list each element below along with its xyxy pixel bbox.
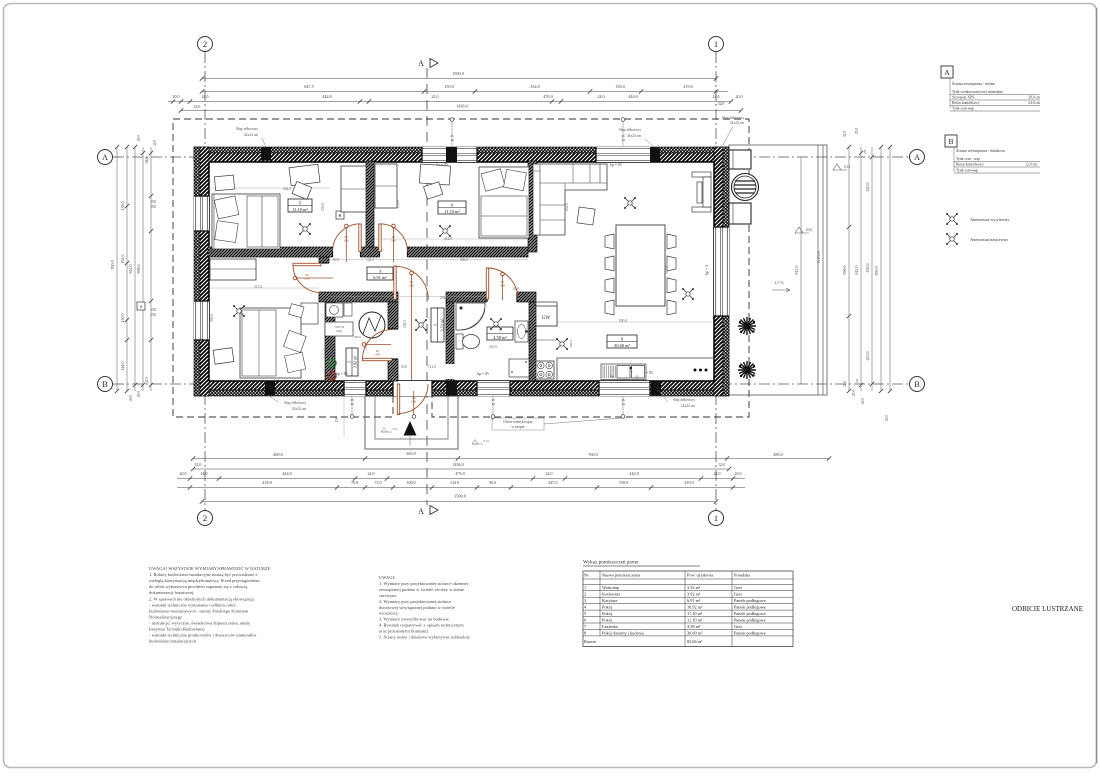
- svg-text:225.0: 225.0: [865, 352, 870, 361]
- svg-text:dokumentacji branżowej.: dokumentacji branżowej.: [149, 590, 194, 595]
- svg-text:- warunki techniczne producent: - warunki techniczne producentów i dosta…: [149, 633, 257, 638]
- svg-text:rozległą kontynuacją międzybra: rozległą kontynuacją międzybranżową. Prz…: [149, 578, 260, 583]
- svg-text:10.92 m²: 10.92 m²: [687, 605, 703, 610]
- svg-text:262.0: 262.0: [565, 203, 569, 212]
- svg-text:20.0: 20.0: [129, 395, 133, 401]
- svg-text:hp = 4: hp = 4: [705, 265, 709, 275]
- svg-text:90.0: 90.0: [489, 480, 496, 485]
- svg-text:Wiatrołap: Wiatrołap: [602, 585, 619, 590]
- svg-text:20.0: 20.0: [173, 94, 180, 99]
- svg-text:1950: 1950: [336, 329, 343, 333]
- svg-text:14: 14: [621, 402, 625, 406]
- svg-text:Pokój: Pokój: [602, 605, 612, 610]
- svg-text:Słup żelbetowy: Słup żelbetowy: [673, 398, 695, 402]
- svg-text:UWAGI:: UWAGI:: [379, 575, 395, 580]
- svg-text:Nazwa pomieszczenia: Nazwa pomieszczenia: [602, 573, 640, 578]
- svg-text:24x24 cm: 24x24 cm: [627, 134, 641, 138]
- svg-text:Beton komórkowy: Beton komórkowy: [952, 101, 980, 105]
- svg-text:158.0: 158.0: [120, 202, 125, 211]
- svg-text:94.0: 94.0: [145, 157, 149, 164]
- svg-text:2: 2: [203, 513, 207, 523]
- svg-text:0.32: 0.32: [483, 439, 489, 443]
- svg-text:5: 5: [584, 611, 586, 616]
- svg-text:B: B: [338, 213, 341, 218]
- svg-text:200: 200: [304, 277, 309, 281]
- svg-text:82.66 m²: 82.66 m²: [687, 639, 703, 644]
- svg-text:2x15x30: 2x15x30: [817, 251, 821, 264]
- svg-text:24x24 cm: 24x24 cm: [681, 404, 695, 408]
- svg-text:24x24 cm: 24x24 cm: [292, 407, 306, 411]
- svg-text:Ściana wewnętrzna - działowa: Ściana wewnętrzna - działowa: [956, 148, 1005, 153]
- svg-text:Tynk cienkowarstwowy mineralny: Tynk cienkowarstwowy mineralny: [952, 90, 1003, 94]
- svg-text:A: A: [944, 68, 950, 77]
- svg-text:budowlano-montażowych - normy: budowlano-montażowych - normy Polskiego …: [149, 608, 249, 613]
- svg-text:Panele podłogowe: Panele podłogowe: [734, 611, 766, 616]
- svg-text:Styropian XPS: Styropian XPS: [952, 96, 974, 100]
- svg-text:32.0: 32.0: [195, 463, 202, 467]
- svg-text:32.0: 32.0: [843, 131, 847, 137]
- svg-text:Gres: Gres: [734, 592, 742, 597]
- svg-text:11.10 m²: 11.10 m²: [687, 617, 703, 622]
- svg-text:1436.0: 1436.0: [452, 462, 464, 467]
- svg-text:200: 200: [375, 353, 380, 357]
- svg-text:20.0: 20.0: [180, 471, 187, 476]
- svg-text:1. Wymiary przy projektowanej: 1. Wymiary przy projektowanej stolarce o…: [379, 581, 468, 586]
- svg-text:150.0: 150.0: [444, 84, 453, 89]
- svg-text:2. W sprawach nie określonych: 2. W sprawach nie określonych dokumentac…: [149, 596, 255, 601]
- svg-text:2: 2: [584, 592, 586, 597]
- svg-text:UWAGA! WSZYSTKIE WYMIARY SPRAW: UWAGA! WSZYSTKIE WYMIARY SPRAWDZIĆ W NAT…: [149, 566, 271, 571]
- svg-text:A: A: [418, 507, 424, 516]
- svg-text:0.32: 0.32: [844, 165, 850, 169]
- svg-text:158.0: 158.0: [403, 320, 407, 328]
- svg-text:A: A: [102, 153, 108, 162]
- svg-text:Pow. użytkowa: Pow. użytkowa: [687, 573, 713, 578]
- svg-text:Korytarz: Korytarz: [602, 598, 617, 603]
- svg-text:8: 8: [584, 630, 586, 635]
- svg-text:Panele podłogowe: Panele podłogowe: [734, 598, 766, 603]
- svg-text:hp = 85: hp = 85: [477, 372, 489, 376]
- svg-text:216.0: 216.0: [489, 345, 497, 349]
- svg-text:11.10 m²: 11.10 m²: [444, 209, 460, 214]
- svg-text:Tynk cem-wap: Tynk cem-wap: [952, 107, 974, 111]
- svg-text:1500.0: 1500.0: [454, 494, 466, 499]
- svg-text:oraz pozostałymi branżami.: oraz pozostałymi branżami.: [379, 629, 429, 634]
- svg-text:50.0: 50.0: [401, 365, 407, 369]
- svg-text:4.58 m²: 4.58 m²: [493, 335, 507, 340]
- svg-text:14: 14: [491, 402, 495, 406]
- svg-text:30.60 m²: 30.60 m²: [687, 630, 703, 635]
- svg-text:150: 150: [150, 205, 156, 209]
- svg-text:Ściana zewnętrzna - nośna: Ściana zewnętrzna - nośna: [952, 81, 995, 86]
- svg-text:Pokój dzienny i kuchnia: Pokój dzienny i kuchnia: [602, 630, 644, 635]
- svg-text:ościeżnicy.: ościeżnicy.: [379, 611, 399, 616]
- svg-text:476.0: 476.0: [455, 471, 464, 476]
- svg-text:700.0: 700.0: [874, 266, 879, 275]
- svg-text:budowlano instalacyjnych.: budowlano instalacyjnych.: [149, 639, 197, 644]
- svg-text:Pokój: Pokój: [602, 611, 612, 616]
- svg-text:3.53 m²: 3.53 m²: [687, 585, 701, 590]
- svg-text:1. Roboty budowlano-instalacyj: 1. Roboty budowlano-instalacyjne muszą b…: [149, 572, 257, 577]
- svg-text:Słup żelbetowy: Słup żelbetowy: [284, 401, 306, 405]
- svg-text:A: A: [418, 59, 424, 68]
- svg-text:Normalizacyjnego: Normalizacyjnego: [149, 614, 183, 619]
- svg-text:24.0: 24.0: [368, 471, 375, 476]
- svg-text:396.0: 396.0: [460, 258, 469, 262]
- svg-text:Instytutu Techniki Budowlanej: Instytutu Techniki Budowlanej: [149, 627, 205, 632]
- svg-text:180.0: 180.0: [353, 335, 361, 339]
- svg-text:24.0: 24.0: [202, 94, 209, 99]
- svg-text:14: 14: [621, 138, 625, 142]
- svg-text:150: 150: [150, 200, 156, 204]
- svg-text:132.0: 132.0: [366, 258, 374, 262]
- svg-text:112.0: 112.0: [428, 365, 436, 369]
- svg-text:4.58 m²: 4.58 m²: [687, 624, 701, 629]
- svg-text:GW: GW: [542, 315, 551, 321]
- svg-text:60.0: 60.0: [333, 258, 339, 262]
- svg-text:B: B: [914, 380, 919, 389]
- svg-text:do robót wykonawca powinien za: do robót wykonawca powinien zapoznać się…: [149, 584, 248, 589]
- svg-text:Wykaz pomieszczeń parter: Wykaz pomieszczeń parter: [583, 560, 639, 566]
- svg-text:0.02: 0.02: [392, 427, 398, 431]
- svg-text:IQ: IQ: [636, 376, 639, 379]
- svg-text:3.92 m²: 3.92 m²: [687, 592, 701, 597]
- svg-text:20.0: 20.0: [861, 398, 865, 404]
- svg-text:250.0: 250.0: [865, 264, 870, 273]
- svg-text:32.0: 32.0: [153, 140, 157, 146]
- svg-text:11.10 m²: 11.10 m²: [292, 207, 308, 212]
- svg-text:612.0: 612.0: [854, 266, 859, 275]
- svg-text:25.0: 25.0: [137, 391, 141, 397]
- svg-text:250.0: 250.0: [569, 340, 573, 348]
- svg-text:Słup żelbetowy: Słup żelbetowy: [722, 116, 744, 120]
- svg-text:3.53 m²: 3.53 m²: [440, 318, 445, 332]
- svg-text:636.0: 636.0: [842, 266, 847, 275]
- svg-text:150: 150: [150, 313, 156, 317]
- svg-text:Panele podłogowe: Panele podłogowe: [734, 605, 766, 610]
- svg-text:2. Wymiary przy projektowanej: 2. Wymiary przy projektowanej stolarce: [379, 599, 451, 604]
- svg-text:32.0: 32.0: [718, 102, 725, 106]
- svg-text:Anemostat wywiewny: Anemostat wywiewny: [970, 217, 1010, 222]
- svg-text:Tynk cem - wap: Tynk cem - wap: [956, 157, 980, 161]
- svg-text:476.0: 476.0: [543, 94, 552, 99]
- svg-text:444.0: 444.0: [629, 471, 638, 476]
- svg-text:25.0: 25.0: [137, 135, 141, 141]
- svg-text:150.0: 150.0: [615, 84, 624, 89]
- svg-text:B: B: [102, 380, 107, 389]
- svg-text:612.0: 612.0: [128, 265, 133, 274]
- svg-text:280.0: 280.0: [773, 452, 782, 457]
- svg-text:14: 14: [450, 138, 454, 142]
- svg-text:200: 200: [411, 400, 416, 404]
- svg-text:250.0: 250.0: [321, 203, 325, 212]
- svg-text:647.5: 647.5: [304, 84, 313, 89]
- svg-text:200: 200: [344, 239, 349, 243]
- svg-text:150: 150: [335, 417, 339, 423]
- svg-text:drzwiowej wewnętrznej podano w: drzwiowej wewnętrznej podano w świetle: [379, 605, 455, 610]
- svg-text:5. Ściany nośne i działowe wyk: 5. Ściany nośne i działowe wykonywać odd…: [379, 635, 471, 640]
- svg-text:Tynk cem-wap: Tynk cem-wap: [956, 169, 978, 173]
- svg-text:134.0: 134.0: [450, 480, 459, 485]
- svg-text:Pokój: Pokój: [602, 617, 612, 622]
- svg-text:Anemostat nawiewny: Anemostat nawiewny: [970, 237, 1009, 242]
- svg-text:24.0: 24.0: [598, 94, 605, 99]
- svg-text:1: 1: [433, 324, 438, 326]
- svg-text:162.0: 162.0: [120, 255, 125, 264]
- svg-text:20.0: 20.0: [885, 415, 889, 421]
- svg-text:260.0: 260.0: [406, 451, 415, 456]
- svg-text:200: 200: [391, 239, 396, 243]
- svg-text:zewnętrznej podano w świetle o: zewnętrznej podano w świetle ościeży w s…: [379, 587, 464, 592]
- svg-text:4. Rysunek rozpatrywać z opise: 4. Rysunek rozpatrywać z opisem technicz…: [379, 623, 464, 628]
- svg-text:20.0: 20.0: [735, 471, 742, 476]
- svg-text:6.91 m²: 6.91 m²: [373, 275, 387, 280]
- svg-text:A: A: [914, 153, 920, 162]
- svg-text:2.0: 2.0: [863, 150, 867, 155]
- svg-text:2: 2: [203, 39, 207, 49]
- svg-text:612.0: 612.0: [794, 266, 799, 275]
- svg-text:24x24 cm: 24x24 cm: [244, 133, 258, 137]
- svg-text:32.0: 32.0: [145, 377, 149, 383]
- svg-text:B: B: [948, 137, 953, 146]
- svg-text:1500.0: 1500.0: [452, 71, 464, 76]
- svg-text:72.0: 72.0: [375, 480, 382, 485]
- svg-text:24.0: 24.0: [201, 471, 208, 476]
- svg-text:Posadzka: Posadzka: [734, 573, 750, 578]
- svg-text:1: 1: [584, 585, 586, 590]
- svg-text:200: 200: [409, 284, 414, 288]
- svg-text:312.0: 312.0: [254, 285, 263, 289]
- svg-text:418.0: 418.0: [262, 480, 271, 485]
- svg-text:Kotłownia: Kotłownia: [602, 592, 620, 597]
- svg-text:225.0: 225.0: [865, 183, 870, 192]
- svg-text:Słup żelbetowy: Słup żelbetowy: [619, 128, 641, 132]
- svg-text:150.0: 150.0: [120, 314, 125, 323]
- svg-text:150: 150: [150, 308, 156, 312]
- svg-text:32.0: 32.0: [194, 105, 201, 109]
- svg-text:32.0: 32.0: [843, 381, 847, 387]
- svg-text:1: 1: [714, 513, 718, 523]
- svg-text:25.0: 25.0: [852, 390, 856, 396]
- svg-text:3: 3: [584, 598, 586, 603]
- svg-text:32.0: 32.0: [719, 463, 726, 467]
- svg-text:444.0: 444.0: [283, 187, 292, 191]
- svg-text:247.0: 247.0: [548, 480, 557, 485]
- svg-text:144.0: 144.0: [120, 362, 125, 371]
- svg-text:Słup żelbetowy: Słup żelbetowy: [236, 127, 258, 131]
- svg-text:444.0: 444.0: [322, 94, 331, 99]
- svg-text:444.0: 444.0: [282, 471, 291, 476]
- svg-text:- warunki techniczne wykonania: - warunki techniczne wykonania i odbioru…: [149, 602, 236, 607]
- svg-text:636.0: 636.0: [136, 265, 141, 274]
- svg-text:1: 1: [714, 39, 718, 49]
- svg-text:Razem: Razem: [584, 639, 597, 644]
- svg-text:100.0: 100.0: [407, 480, 416, 485]
- svg-text:hp = 85: hp = 85: [336, 372, 348, 376]
- svg-text:14: 14: [350, 402, 354, 406]
- svg-text:Beton komórkowy: Beton komórkowy: [956, 163, 984, 167]
- svg-text:30.60 m²: 30.60 m²: [614, 343, 630, 348]
- svg-text:3. Wymiary zweryfikować na bud: 3. Wymiary zweryfikować na budowie.: [379, 617, 450, 622]
- svg-text:Łazienka: Łazienka: [602, 624, 618, 629]
- svg-text:11.10 m²: 11.10 m²: [687, 611, 703, 616]
- svg-text:350.0: 350.0: [210, 314, 214, 323]
- svg-text:219.0: 219.0: [683, 84, 692, 89]
- svg-text:200: 200: [500, 284, 505, 288]
- svg-text:Nr: Nr: [584, 573, 589, 578]
- svg-text:6.91 m²: 6.91 m²: [687, 598, 701, 603]
- svg-text:150.0: 150.0: [619, 480, 628, 485]
- svg-text:hp = 85: hp = 85: [610, 163, 622, 167]
- svg-text:Otwór wentylacyjny: Otwór wentylacyjny: [503, 420, 533, 424]
- svg-text:24.0: 24.0: [546, 471, 553, 476]
- svg-text:444.0: 444.0: [628, 94, 637, 99]
- svg-text:w stropie: w stropie: [511, 425, 525, 429]
- svg-text:1436.0: 1436.0: [456, 104, 468, 109]
- svg-text:Gres: Gres: [734, 585, 742, 590]
- svg-text:ODBICIE LUSTRZANE: ODBICIE LUSTRZANE: [1012, 605, 1083, 613]
- svg-text:760.0: 760.0: [588, 452, 597, 457]
- svg-text:24.0: 24.0: [432, 94, 439, 99]
- svg-text:surowym.: surowym.: [379, 593, 397, 598]
- svg-text:24.0: 24.0: [714, 471, 721, 476]
- svg-text:24.0: 24.0: [713, 94, 720, 99]
- svg-text:25.0: 25.0: [855, 128, 859, 134]
- svg-text:700.0: 700.0: [110, 260, 115, 269]
- svg-text:3.92 m²: 3.92 m²: [353, 355, 358, 368]
- svg-text:2: 2: [347, 361, 352, 363]
- svg-text:20.0: 20.0: [736, 94, 743, 99]
- svg-text:24x24 cm: 24x24 cm: [730, 121, 744, 125]
- svg-text:219.0: 219.0: [684, 480, 693, 485]
- svg-text:500.0: 500.0: [619, 319, 628, 323]
- svg-text:2.0: 2.0: [855, 379, 859, 384]
- svg-text:Panele podłogowe: Panele podłogowe: [734, 617, 766, 622]
- svg-text:Gres: Gres: [734, 624, 742, 629]
- svg-text:0.02: 0.02: [806, 228, 812, 232]
- svg-text:480.0: 480.0: [273, 452, 282, 457]
- svg-text:70.0: 70.0: [351, 480, 358, 485]
- svg-text:Panele podłogowe: Panele podłogowe: [734, 630, 766, 635]
- svg-text:334.0: 334.0: [530, 84, 539, 89]
